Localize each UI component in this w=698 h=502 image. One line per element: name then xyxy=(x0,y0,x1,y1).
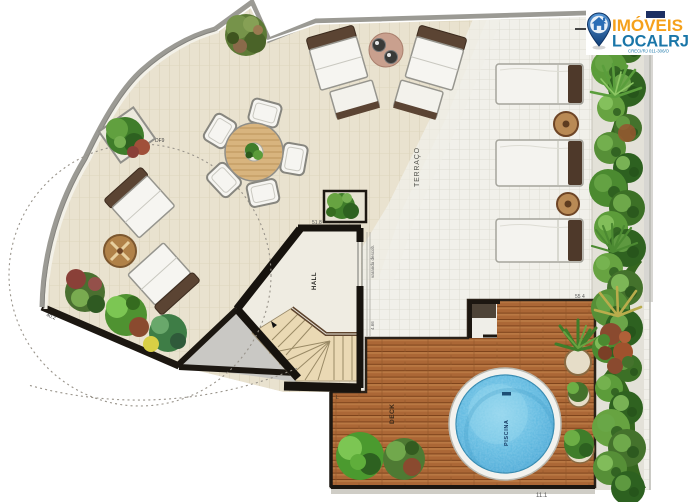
svg-text:L: L xyxy=(336,395,339,401)
svg-text:HALL: HALL xyxy=(312,272,318,290)
svg-text:DF9: DF9 xyxy=(155,138,165,144)
svg-text:CRECI/RJ 011-306/O: CRECI/RJ 011-306/O xyxy=(628,49,669,54)
svg-text:TERRAÇO: TERRAÇO xyxy=(414,147,421,187)
svg-text:PISCINA: PISCINA xyxy=(504,419,510,446)
svg-text:DECK: DECK xyxy=(389,404,396,424)
svg-text:4.66: 4.66 xyxy=(370,321,375,330)
svg-text:51.8: 51.8 xyxy=(312,220,322,226)
svg-text:varanda descob.: varanda descob. xyxy=(370,245,375,278)
svg-text:55 4: 55 4 xyxy=(575,294,585,300)
svg-text:11.1: 11.1 xyxy=(536,493,548,499)
